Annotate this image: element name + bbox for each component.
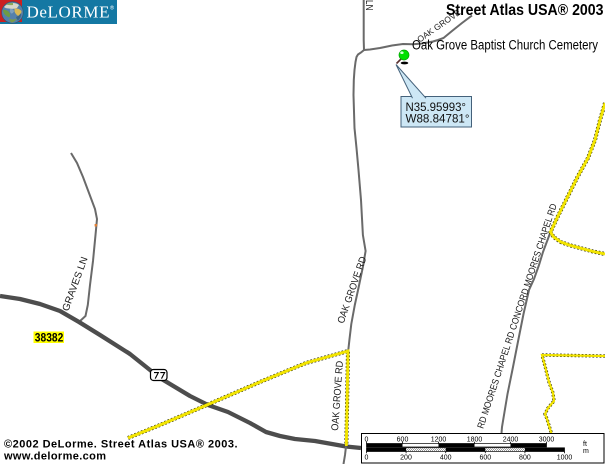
svg-text:Street Atlas USA® 2003: Street Atlas USA® 2003 bbox=[446, 2, 604, 19]
svg-text:0: 0 bbox=[365, 455, 369, 462]
svg-text:600: 600 bbox=[479, 455, 491, 462]
svg-text:1000: 1000 bbox=[557, 455, 573, 462]
svg-text:200: 200 bbox=[400, 455, 412, 462]
svg-text:®: ® bbox=[110, 5, 114, 12]
svg-text:W88.84781°: W88.84781° bbox=[406, 111, 470, 125]
svg-text:38382: 38382 bbox=[35, 330, 64, 344]
svg-text:DeLORME: DeLORME bbox=[27, 3, 110, 22]
svg-text:©2002 DeLorme. Street Atlas US: ©2002 DeLorme. Street Atlas USA® 2003. bbox=[4, 439, 238, 451]
svg-text:800: 800 bbox=[519, 455, 531, 462]
svg-text:m: m bbox=[583, 448, 589, 455]
svg-text:ft: ft bbox=[583, 441, 587, 448]
svg-text:LN: LN bbox=[363, 0, 374, 11]
svg-text:Oak Grove Baptist Church Cemet: Oak Grove Baptist Church Cemetery bbox=[412, 38, 598, 53]
svg-text:www.delorme.com: www.delorme.com bbox=[3, 451, 106, 463]
svg-text:400: 400 bbox=[440, 455, 452, 462]
